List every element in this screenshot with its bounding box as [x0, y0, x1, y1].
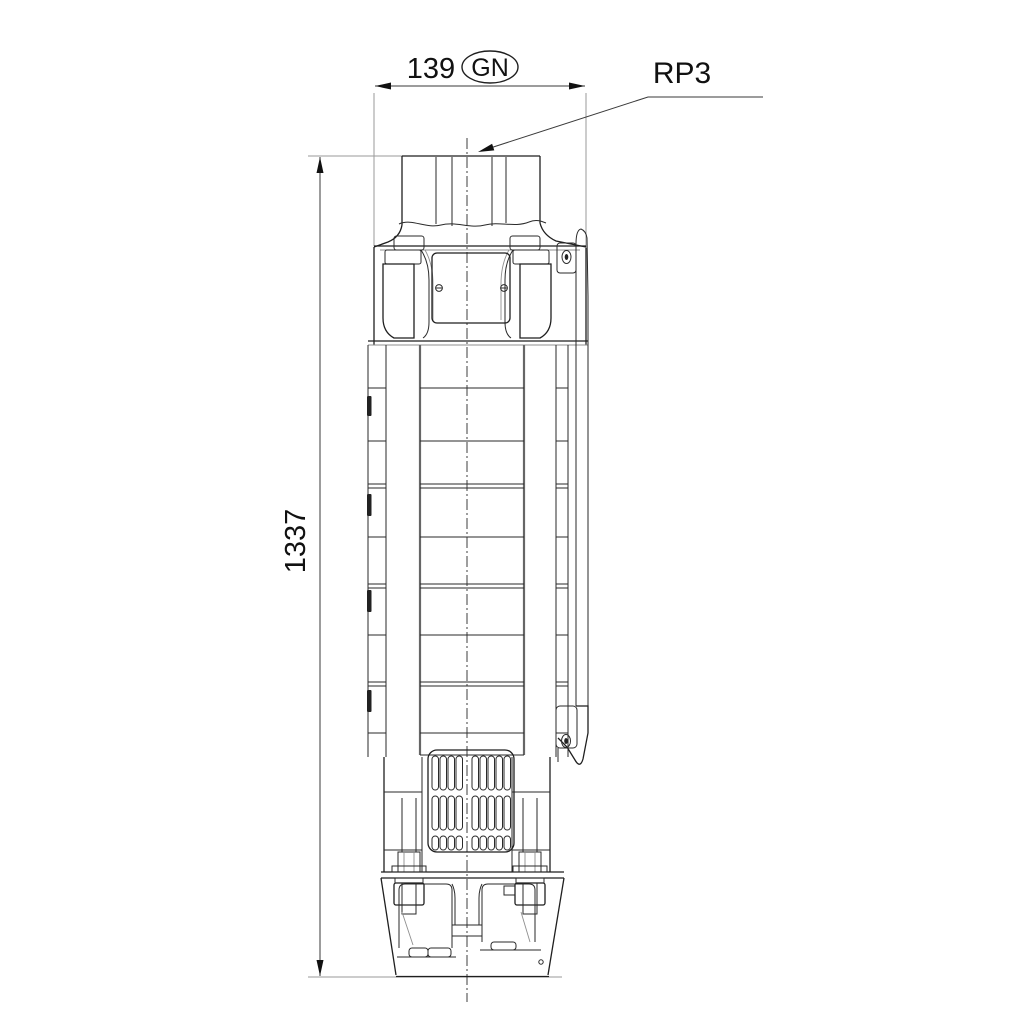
stool-pin-hole — [539, 960, 543, 964]
dim-arrow-left — [375, 83, 391, 90]
cable-guard-bottom-clamp — [556, 706, 588, 764]
cable-guard — [556, 229, 588, 764]
gn-badge: GN — [462, 51, 518, 83]
stool-window-left — [397, 884, 456, 957]
stage-joints — [368, 388, 568, 733]
cable-guard-top-clamp — [557, 229, 588, 296]
stool-window-right — [480, 884, 541, 950]
strainer-slots — [432, 756, 511, 850]
height-dim-value: 1337 — [280, 509, 312, 574]
shoulder-cast-line — [399, 220, 546, 226]
gn-badge-label: GN — [471, 54, 509, 82]
dim-arrow-right — [569, 83, 585, 90]
chamber-stack — [367, 345, 568, 757]
port-label: RP3 — [653, 57, 711, 90]
leader-line — [481, 97, 763, 151]
cable-clamp-right — [501, 236, 551, 338]
leader-arrow — [478, 144, 494, 152]
nameplate — [432, 253, 510, 323]
port-callout: RP3 — [478, 57, 763, 152]
stool-divider — [452, 884, 482, 936]
cable-clamp-left — [383, 236, 433, 338]
technical-drawing-page: 139 GN 1337 RP3 — [0, 0, 1024, 1024]
dim-arrow-top — [317, 157, 324, 173]
discharge-connection — [374, 156, 586, 247]
dim-arrow-bottom — [317, 960, 324, 976]
width-dim-value: 139 — [407, 53, 455, 85]
pump-technical-drawing: 139 GN 1337 RP3 — [0, 0, 1024, 1024]
pump-head — [368, 236, 588, 345]
width-dimension: 139 GN — [374, 51, 586, 248]
bolt-right — [504, 878, 545, 914]
